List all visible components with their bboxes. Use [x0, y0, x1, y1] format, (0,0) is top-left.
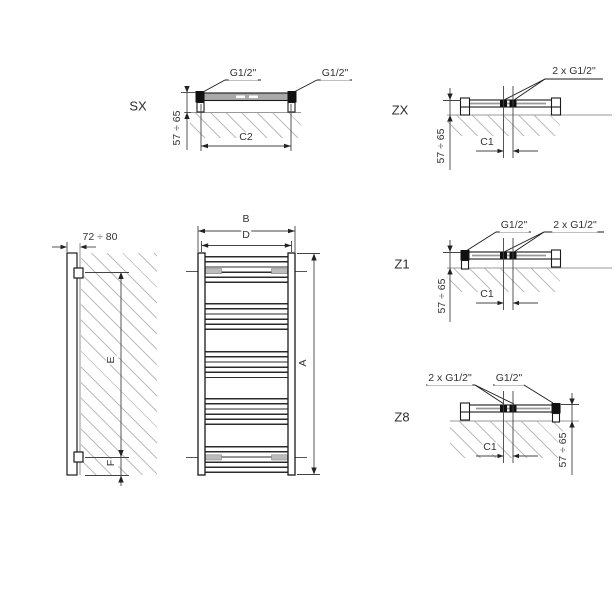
arrowhead	[118, 476, 123, 483]
arrowhead	[61, 245, 68, 249]
arrowhead	[569, 399, 574, 406]
z8-c1-dimension-label: C1	[482, 442, 497, 454]
front-view	[186, 226, 320, 475]
arrowhead	[184, 86, 189, 93]
sx-left-connection-square	[196, 91, 205, 103]
side-e-dimension-label: E	[106, 355, 118, 364]
arrowhead	[80, 245, 87, 249]
z8-view	[426, 385, 579, 475]
z1-depth-dimension-label: 57 ÷ 65	[437, 278, 449, 315]
arrowhead	[447, 268, 452, 275]
arrowhead	[118, 450, 123, 457]
front-d-dimension	[202, 241, 292, 252]
arrowhead	[198, 229, 205, 234]
z1-left-bracket	[462, 261, 469, 270]
side-wall-distance-label: 72 ÷ 80	[82, 232, 119, 244]
z1-left-connection-square	[461, 250, 470, 261]
arrowhead	[513, 149, 519, 153]
z8-leader-lines	[426, 385, 553, 404]
arrowhead	[569, 421, 574, 428]
arrowhead	[498, 301, 504, 305]
z8-right-connection-square	[552, 403, 561, 414]
arrowhead	[498, 149, 504, 153]
drawing-linework	[0, 0, 616, 616]
arrowhead	[513, 301, 519, 305]
sx-bar-slot	[249, 96, 258, 99]
sx-left-bracket	[197, 103, 204, 113]
zx-center-connection-label: 2 x G1/2"	[551, 66, 596, 78]
sx-view-label: SX	[129, 99, 146, 114]
sx-view	[181, 80, 352, 151]
sx-depth-dimension-label: 57 ÷ 65	[172, 110, 184, 147]
z1-center-connection-label: 2 x G1/2"	[552, 220, 597, 232]
side-lower-bracket	[74, 452, 83, 462]
z1-view	[443, 232, 612, 322]
arrowhead	[285, 243, 292, 247]
front-bracket-fitting	[206, 269, 222, 274]
z1-c1-dimension-label: C1	[479, 289, 494, 301]
zx-c1-dimension-label: C1	[479, 137, 494, 149]
front-left-collector	[198, 253, 205, 475]
technical-drawing-canvas: SX ZX Z1 Z8 G1/2" G1/2" 2 x G1/2" G1/2" …	[0, 0, 616, 616]
arrowhead	[202, 243, 209, 247]
zx-view	[443, 79, 612, 170]
front-b-dimension-label: B	[241, 214, 250, 226]
arrowhead	[118, 272, 123, 279]
side-radiator-profile	[67, 253, 77, 475]
arrowhead	[513, 454, 519, 458]
front-right-collector	[288, 253, 295, 475]
front-bracket-fitting	[272, 269, 288, 274]
front-bracket-fitting	[272, 455, 288, 460]
front-bracket-fitting	[206, 455, 222, 460]
z8-view-label: Z8	[394, 410, 409, 425]
arrowhead	[311, 468, 316, 475]
z1-leader-lines	[466, 232, 604, 252]
z1-left-connection-label: G1/2"	[500, 220, 529, 232]
sx-left-connection-label: G1/2"	[229, 68, 258, 80]
arrowhead	[284, 144, 291, 149]
z8-depth-dimension-label: 57 ÷ 65	[558, 432, 570, 469]
side-f-dimension-label: F	[106, 459, 118, 467]
arrowhead	[447, 94, 452, 101]
z8-right-bracket	[553, 414, 560, 423]
front-d-dimension-label: D	[241, 230, 251, 242]
sx-right-bracket	[288, 103, 295, 113]
sx-radiator-bar	[198, 93, 295, 101]
sx-right-connection-square	[288, 91, 297, 103]
z1-view-label: Z1	[394, 257, 409, 272]
arrowhead	[288, 229, 295, 234]
arrowhead	[447, 115, 452, 122]
zx-view-label: ZX	[392, 103, 409, 118]
arrowhead	[201, 144, 208, 149]
side-e-f-dimensions	[85, 272, 129, 486]
sx-leader-lines	[203, 80, 352, 92]
arrowhead	[498, 454, 504, 458]
zx-leader-lines	[504, 79, 603, 100]
sx-c2-dimension-label: C2	[238, 132, 253, 144]
arrowhead	[311, 254, 316, 261]
front-a-dimension-label: A	[298, 358, 310, 367]
zx-depth-dimension-label: 57 ÷ 65	[436, 128, 448, 165]
arrowhead	[184, 113, 189, 120]
z8-center-connection-label: 2 x G1/2"	[427, 373, 472, 385]
sx-c2-dimension	[201, 104, 291, 151]
z8-right-connection-label: G1/2"	[495, 373, 524, 385]
sx-right-connection-label: G1/2"	[321, 68, 350, 80]
sx-bar-slot	[236, 96, 245, 99]
arrowhead	[447, 246, 452, 253]
side-upper-bracket	[74, 268, 83, 278]
